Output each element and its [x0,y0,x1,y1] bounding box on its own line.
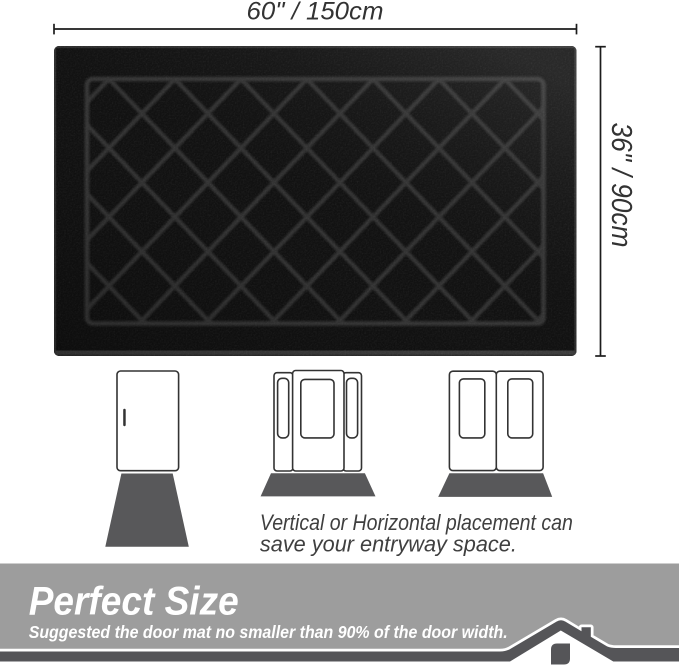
svg-text:save your entryway space.: save your entryway space. [260,532,517,557]
svg-text:Perfect Size: Perfect Size [29,580,239,624]
svg-text:60" / 150cm: 60" / 150cm [247,0,384,26]
svg-text:Suggested the door mat no smal: Suggested the door mat no smaller than 9… [29,622,508,642]
svg-text:36" / 90cm: 36" / 90cm [605,123,637,248]
